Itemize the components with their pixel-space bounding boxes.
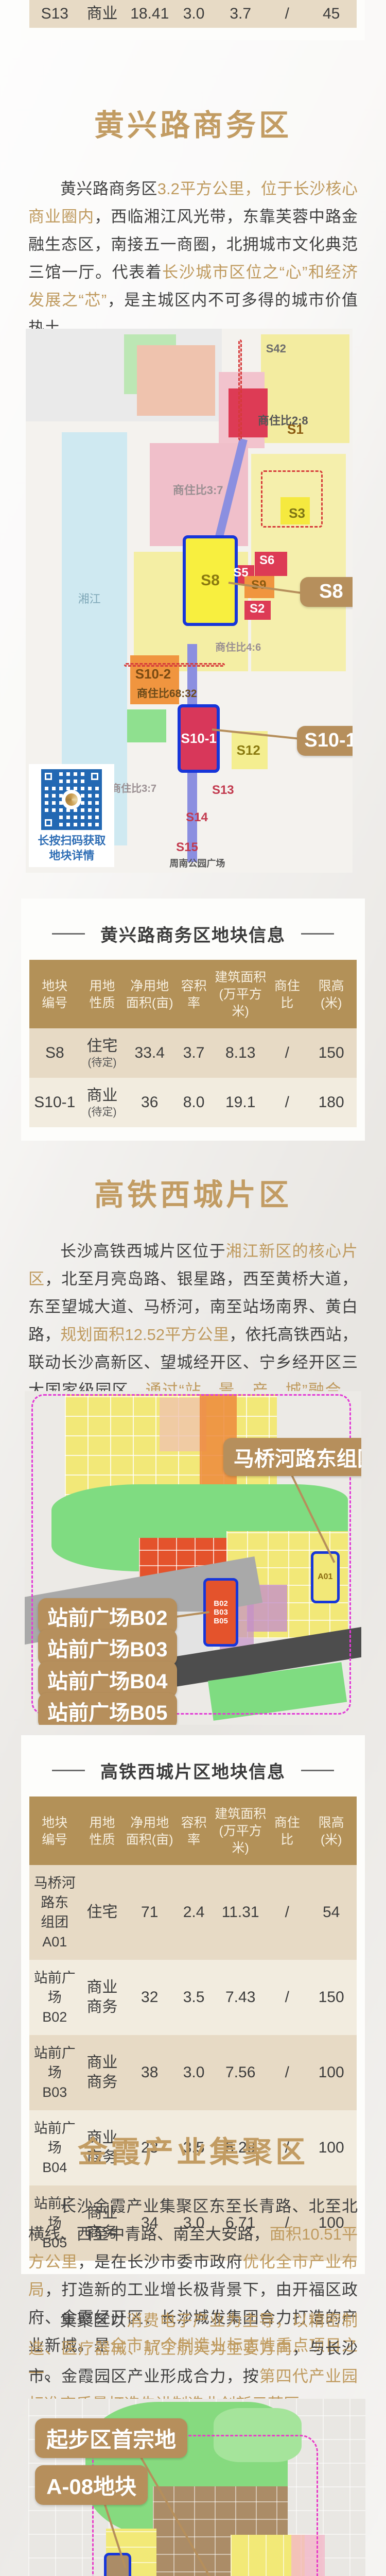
cell-plot-id: 马桥河路东 组团A01 bbox=[29, 1865, 80, 1960]
cell-area: 71 bbox=[124, 1865, 175, 1960]
cell-area: 33.4 bbox=[124, 1028, 175, 1078]
plot-label: A01 bbox=[318, 1572, 332, 1582]
cell-area: 36 bbox=[124, 1078, 175, 1127]
cell-ratio: / bbox=[268, 1028, 306, 1078]
callout-chip-a01: 马桥河路东组团A01 bbox=[223, 1438, 361, 1476]
map-parcel bbox=[127, 709, 166, 742]
paragraph-highlight: 规划面积12.52平方公里 bbox=[61, 1326, 230, 1344]
cell-plot-id: S8 bbox=[29, 1028, 80, 1078]
paragraph-segment: 集聚区以 bbox=[60, 2312, 127, 2330]
cell-far: 3.5 bbox=[175, 1960, 213, 2035]
map-label: S13 bbox=[212, 783, 234, 798]
cell-area: 18.41 bbox=[124, 0, 175, 28]
cell-height: 45 bbox=[306, 0, 357, 28]
qr-eye-icon bbox=[41, 816, 56, 830]
cell-far: 3.7 bbox=[175, 1028, 213, 1078]
plot-a01-outline: A01 bbox=[311, 1551, 340, 1603]
table-title-text: 高铁西城片区地块信息 bbox=[100, 1758, 286, 1783]
section-title-jinxia: 金霞产业集聚区 bbox=[0, 2128, 386, 2171]
column-header: 建筑面积 (万平方米) bbox=[213, 960, 268, 1028]
cell-ratio: / bbox=[268, 2035, 306, 2110]
map-label: 商住比3:7 bbox=[173, 481, 223, 498]
column-header: 商住比 bbox=[268, 1797, 306, 1865]
cell-gfa: 8.13 bbox=[213, 1028, 268, 1078]
column-header: 限高 (米) bbox=[306, 1797, 357, 1865]
plot-label: B03 bbox=[214, 1608, 228, 1617]
cell-height: 150 bbox=[306, 1028, 357, 1078]
table-title: 高铁西城片区地块信息 bbox=[29, 1758, 357, 1783]
map-label: S14 bbox=[186, 810, 208, 825]
cell-height: 150 bbox=[306, 1960, 357, 2035]
column-header: 地块 编号 bbox=[29, 960, 80, 1028]
column-header: 限高 (米) bbox=[306, 960, 357, 1028]
callout-chip-b05: 站前广场B05 bbox=[38, 1693, 177, 1725]
map-label: S42 bbox=[266, 342, 286, 355]
cell-use: 住宅(待定) bbox=[80, 1028, 125, 1078]
map-label: 商住比68:32 bbox=[137, 685, 197, 701]
section-paragraph: 黄兴路商务区3.2平方公里，位于长沙核心商业圈内，西临湘江风光带，东靠芙蓉中路金… bbox=[28, 175, 358, 342]
column-header: 地块 编号 bbox=[29, 1797, 80, 1865]
cell-ratio: / bbox=[268, 1865, 306, 1960]
cell-ratio: / bbox=[268, 0, 306, 28]
callout-chip-b02: 站前广场B02 bbox=[38, 1598, 177, 1634]
table-title-text: 黄兴路商务区地块信息 bbox=[100, 921, 286, 946]
section-title-gaotie: 高铁西城片区 bbox=[0, 1171, 386, 1214]
cell-gfa: 7.43 bbox=[213, 1960, 268, 2035]
plot-a08-outline bbox=[104, 2553, 131, 2576]
cell-area: 32 bbox=[124, 1960, 175, 2035]
huangxing-zoning-map: S8 S10-1 湘江 S42 商住比2:8 S1 商住比3:7 S3 S5 S… bbox=[26, 329, 353, 873]
plot-table: 地块 编号 用地 性质 净用地 面积(亩) 容积率 建筑面积 (万平方米) 商住… bbox=[29, 960, 357, 1127]
plot-label: B02 bbox=[214, 1599, 228, 1608]
plot-s10-1-outline: S10-1 bbox=[178, 704, 220, 773]
cell-gfa: 19.1 bbox=[213, 1078, 268, 1127]
cell-plot-id: S13 bbox=[29, 0, 80, 28]
title-dash bbox=[52, 1770, 85, 1771]
map-label-park: 周南公园广场 bbox=[169, 856, 225, 870]
top-table-card: S13 商业 18.41 3.0 3.7 / 45 bbox=[21, 0, 365, 40]
table-header-row: 地块 编号 用地 性质 净用地 面积(亩) 容积率 建筑面积 (万平方米) 商住… bbox=[29, 960, 357, 1028]
cell-height: 54 bbox=[306, 1865, 357, 1960]
huangxing-table-card: 黄兴路商务区地块信息 地块 编号 用地 性质 净用地 面积(亩) 容积率 建筑面… bbox=[21, 899, 365, 1141]
cell-gfa: 11.31 bbox=[213, 1865, 268, 1960]
qr-eye-icon bbox=[87, 769, 102, 784]
plot-label: B05 bbox=[214, 1617, 228, 1625]
title-dash bbox=[301, 933, 334, 935]
table-row: S10-1 商业(待定) 36 8.0 19.1 / 180 bbox=[29, 1078, 357, 1127]
cell-use: 商业(待定) bbox=[80, 1078, 125, 1127]
paragraph-segment: 长沙高铁西城片区位于 bbox=[60, 1242, 226, 1260]
map-parcel bbox=[137, 345, 215, 416]
cell-use: 商业 商务 bbox=[80, 1960, 125, 2035]
table-row: 站前广场 B03 商业 商务 38 3.0 7.56 / 100 bbox=[29, 2035, 357, 2110]
callout-chip-first-parcel: 起步区首宗地 bbox=[35, 2418, 187, 2458]
cell-plot-id: 站前广场 B02 bbox=[29, 1960, 80, 2035]
qr-eye-icon bbox=[41, 769, 56, 784]
jinxia-zoning-map: 起步区首宗地 A-08地块 长按扫码获取 地块详情 bbox=[28, 2399, 365, 2576]
cell-far: 2.4 bbox=[175, 1865, 213, 1960]
map-boundary-dashed bbox=[238, 340, 242, 440]
column-header: 用地 性质 bbox=[80, 1797, 125, 1865]
cell-use: 商业 bbox=[80, 0, 125, 28]
table-title: 黄兴路商务区地块信息 bbox=[29, 921, 357, 946]
table-row: S8 住宅(待定) 33.4 3.7 8.13 / 150 bbox=[29, 1028, 357, 1078]
column-header: 容积率 bbox=[175, 960, 213, 1028]
column-header: 净用地 面积(亩) bbox=[124, 1797, 175, 1865]
cell-far: 3.0 bbox=[175, 0, 213, 28]
column-header: 商住比 bbox=[268, 960, 306, 1028]
callout-chip-b04: 站前广场B04 bbox=[38, 1662, 177, 1698]
map-label: S2 bbox=[250, 602, 265, 616]
cell-plot-id: 站前广场 B03 bbox=[29, 2035, 80, 2110]
map-label: S5 bbox=[233, 566, 248, 580]
cell-use: 住宅 bbox=[80, 1865, 125, 1960]
plot-s8-outline: S8 bbox=[183, 535, 238, 626]
table-row: 马桥河路东 组团A01 住宅 71 2.4 11.31 / 54 bbox=[29, 1865, 357, 1960]
table-header-row: 地块 编号 用地 性质 净用地 面积(亩) 容积率 建筑面积 (万平方米) 商住… bbox=[29, 1797, 357, 1865]
section-title-huangxing: 黄兴路商务区 bbox=[0, 101, 386, 144]
column-header: 建筑面积 (万平方米) bbox=[213, 1797, 268, 1865]
map-label: S12 bbox=[237, 742, 260, 758]
map-label: S10-2 bbox=[135, 666, 171, 682]
callout-chip-s10-1: S10-1 bbox=[297, 726, 353, 756]
title-dash bbox=[301, 1770, 334, 1771]
cell-ratio: / bbox=[268, 1960, 306, 2035]
map-label-river: 湘江 bbox=[78, 590, 101, 606]
cell-height: 100 bbox=[306, 2035, 357, 2110]
plot-label: S8 bbox=[201, 572, 220, 589]
paragraph-segment: 黄兴路商务区 bbox=[60, 180, 157, 198]
promo-page: S13 商业 18.41 3.0 3.7 / 45 黄兴路商务区 黄兴路商务区3… bbox=[0, 0, 386, 2576]
column-header: 净用地 面积(亩) bbox=[124, 960, 175, 1028]
title-dash bbox=[52, 933, 85, 935]
callout-chip-a08: A-08地块 bbox=[35, 2465, 148, 2505]
cell-far: 8.0 bbox=[175, 1078, 213, 1127]
table-row: 站前广场 B02 商业 商务 32 3.5 7.43 / 150 bbox=[29, 1960, 357, 2035]
plot-label: S10-1 bbox=[181, 731, 216, 747]
qr-caption: 长按扫码获取 地块详情 bbox=[38, 833, 106, 863]
cell-height: 180 bbox=[306, 1078, 357, 1127]
qr-block: 长按扫码获取 地块详情 bbox=[29, 764, 114, 867]
map-label: S3 bbox=[289, 505, 305, 521]
map-label: 商住比3:7 bbox=[111, 780, 156, 795]
paragraph-segment: ，是在长沙市委市政府 bbox=[78, 2253, 243, 2271]
brand-logo-icon bbox=[62, 790, 81, 809]
column-header: 容积率 bbox=[175, 1797, 213, 1865]
cell-use: 商业 商务 bbox=[80, 2035, 125, 2110]
map-label: 商住比4:6 bbox=[215, 639, 261, 654]
cell-gfa: 3.7 bbox=[213, 0, 268, 28]
cell-ratio: / bbox=[268, 1078, 306, 1127]
callout-chip-s8: S8 bbox=[300, 577, 353, 607]
cell-area: 38 bbox=[124, 2035, 175, 2110]
map-label: S6 bbox=[259, 553, 274, 568]
cell-gfa: 7.56 bbox=[213, 2035, 268, 2110]
qr-code[interactable] bbox=[41, 769, 102, 830]
table-row: S13 商业 18.41 3.0 3.7 / 45 bbox=[29, 0, 357, 28]
map-label: S1 bbox=[287, 421, 304, 437]
column-header: 用地 性质 bbox=[80, 960, 125, 1028]
cell-plot-id: S10-1 bbox=[29, 1078, 80, 1127]
cell-far: 3.0 bbox=[175, 2035, 213, 2110]
plot-table: 地块 编号 用地 性质 净用地 面积(亩) 容积率 建筑面积 (万平方米) 商住… bbox=[29, 1797, 357, 2261]
map-label: S15 bbox=[176, 840, 198, 855]
gaotie-zoning-map: A01 B02 B03 B05 马桥河路东组团A01 站前广场B02 站前广场B… bbox=[25, 1391, 361, 1725]
callout-chip-b03: 站前广场B03 bbox=[38, 1630, 177, 1666]
